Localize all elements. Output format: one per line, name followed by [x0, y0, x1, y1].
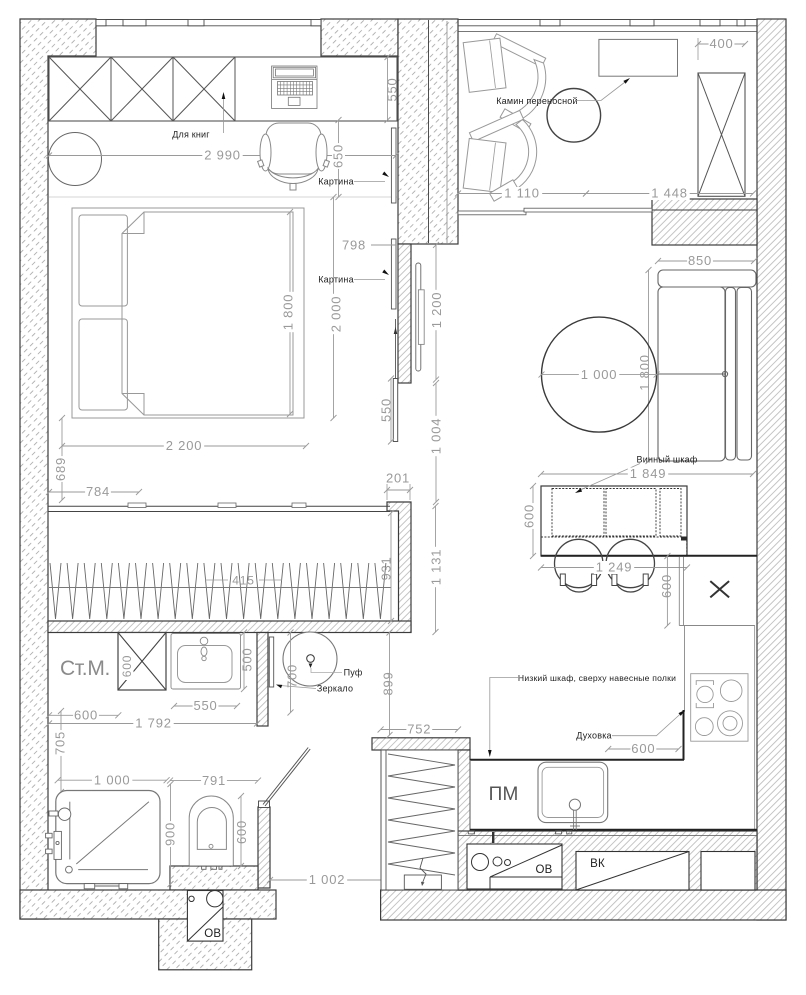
- svg-text:850: 850: [688, 253, 712, 268]
- svg-text:Пуф: Пуф: [344, 668, 363, 678]
- svg-text:1 110: 1 110: [504, 186, 540, 201]
- svg-text:Для книг: Для книг: [172, 130, 210, 140]
- svg-text:1 000: 1 000: [581, 367, 618, 382]
- svg-text:689: 689: [53, 457, 68, 481]
- svg-text:ОВ: ОВ: [535, 864, 552, 876]
- svg-text:Картина: Картина: [318, 177, 354, 187]
- svg-text:550: 550: [385, 77, 400, 101]
- svg-text:Духовка: Духовка: [576, 731, 612, 741]
- svg-text:600: 600: [234, 820, 249, 844]
- svg-text:752: 752: [407, 722, 431, 737]
- svg-text:2 000: 2 000: [329, 296, 344, 333]
- svg-text:600: 600: [631, 741, 655, 756]
- svg-text:1 004: 1 004: [429, 418, 444, 455]
- svg-text:Зеркало: Зеркало: [317, 684, 353, 694]
- svg-text:1 002: 1 002: [309, 872, 346, 887]
- svg-text:ПМ: ПМ: [489, 784, 519, 805]
- svg-text:1 249: 1 249: [596, 560, 633, 575]
- svg-text:1 200: 1 200: [429, 292, 444, 329]
- svg-text:791: 791: [202, 773, 226, 788]
- svg-text:1 792: 1 792: [135, 716, 172, 731]
- svg-text:1 800: 1 800: [281, 294, 296, 331]
- svg-text:600: 600: [120, 655, 134, 677]
- svg-text:ОВ: ОВ: [204, 928, 221, 940]
- svg-text:Картина: Картина: [318, 275, 354, 285]
- svg-text:899: 899: [381, 671, 396, 695]
- svg-text:550: 550: [193, 698, 217, 713]
- svg-text:784: 784: [86, 484, 110, 499]
- svg-text:705: 705: [53, 731, 68, 755]
- svg-text:Винный шкаф: Винный шкаф: [637, 455, 698, 465]
- svg-text:798: 798: [342, 238, 366, 253]
- svg-text:500: 500: [240, 647, 255, 671]
- svg-text:550: 550: [379, 398, 394, 422]
- svg-text:415: 415: [232, 574, 254, 588]
- svg-text:2 200: 2 200: [166, 438, 203, 453]
- svg-text:1 000: 1 000: [94, 772, 131, 787]
- svg-text:600: 600: [659, 574, 674, 598]
- svg-text:400: 400: [709, 36, 733, 51]
- svg-text:1 448: 1 448: [651, 186, 688, 201]
- svg-text:600: 600: [522, 504, 537, 528]
- svg-text:931: 931: [379, 556, 394, 580]
- svg-text:1 800: 1 800: [637, 354, 652, 391]
- svg-text:Низкий шкаф, сверху навесные п: Низкий шкаф, сверху навесные полки: [518, 673, 676, 683]
- svg-text:Камин переносной: Камин переносной: [496, 96, 578, 106]
- svg-text:2 990: 2 990: [204, 148, 241, 163]
- svg-text:900: 900: [163, 822, 178, 846]
- svg-text:201: 201: [386, 471, 410, 486]
- svg-text:700: 700: [285, 664, 300, 688]
- svg-text:Ст.М.: Ст.М.: [60, 657, 110, 680]
- svg-text:1 131: 1 131: [429, 549, 444, 586]
- svg-text:650: 650: [331, 144, 346, 168]
- svg-text:1 849: 1 849: [630, 466, 667, 481]
- svg-text:600: 600: [74, 708, 98, 723]
- svg-text:ВК: ВК: [590, 858, 605, 870]
